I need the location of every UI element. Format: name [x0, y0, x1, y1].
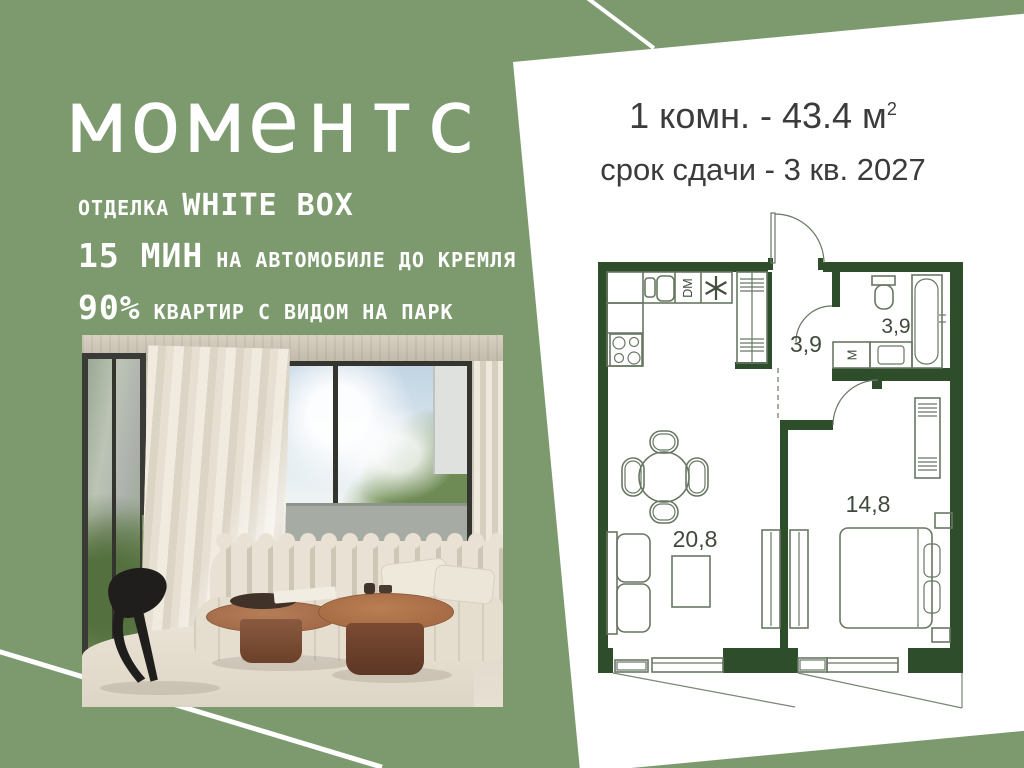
stove	[610, 334, 642, 366]
bedroom-area-label: 14,8	[846, 491, 891, 517]
offer-header: 1 комн. - 43.4 м2 срок сдачи - 3 кв. 202…	[563, 96, 963, 187]
tall-cabinet	[737, 272, 767, 363]
offer-deadline-text: срок сдачи - 3 кв. 2027	[563, 153, 963, 187]
offer-area-text: 1 комн. - 43.4 м2	[563, 96, 963, 136]
bedroom-wardrobe	[915, 398, 940, 478]
plan-sofa	[607, 532, 650, 634]
fridge-icon	[706, 276, 727, 300]
area-sup: 2	[887, 99, 897, 119]
coffee-table-right-base	[346, 623, 424, 675]
flyer-background: моментс ОТДЕЛКА WHITE BOX 15 МИН НА АВТО…	[0, 0, 1024, 768]
feature-list: ОТДЕЛКА WHITE BOX 15 МИН НА АВТОМОБИЛЕ Д…	[78, 188, 516, 327]
coffee-table-left-base	[240, 619, 302, 663]
view-label: КВАРТИР С ВИДОМ НА ПАРК	[154, 300, 454, 324]
hall-area-label: 3,9	[790, 331, 822, 357]
drive-value: 15 МИН	[78, 236, 203, 275]
floor-plan: DM	[590, 200, 970, 720]
bed	[840, 513, 952, 642]
bathtub	[912, 275, 946, 368]
bedroom-door	[833, 380, 878, 425]
area-value: 1 комн. - 43.4 м	[629, 95, 887, 136]
feature-drive: 15 МИН НА АВТОМОБИЛЕ ДО КРЕМЛЯ	[78, 236, 516, 275]
dining-set	[622, 431, 708, 523]
interior-photo	[82, 335, 503, 707]
plan-coffee-table	[672, 556, 710, 607]
dishwasher-label: DM	[681, 278, 695, 297]
building-outside	[433, 366, 467, 474]
finish-label: ОТДЕЛКА	[78, 196, 169, 220]
table-cup	[364, 583, 375, 594]
window-view	[278, 361, 472, 547]
view-value: 90%	[78, 288, 141, 327]
toilet	[872, 276, 895, 309]
finish-value: WHITE BOX	[182, 188, 354, 223]
living-room-area-label: 20,8	[673, 526, 718, 552]
accent-line-top	[586, 0, 655, 50]
brand-logo: моментс	[70, 78, 483, 166]
table-cup	[379, 585, 392, 593]
drive-label: НА АВТОМОБИЛЕ ДО КРЕМЛЯ	[216, 248, 516, 272]
lounge-chair	[92, 565, 207, 690]
bathroom-area-label: 3,9	[881, 315, 910, 338]
feature-view: 90% КВАРТИР С ВИДОМ НА ПАРК	[78, 288, 516, 327]
sofa-pillow	[432, 564, 495, 605]
kitchen-sink	[645, 276, 674, 301]
entry-door	[771, 213, 824, 263]
washer-label: M	[845, 350, 860, 361]
feature-finish: ОТДЕЛКА WHITE BOX	[78, 188, 516, 223]
balcony-outline	[613, 673, 962, 708]
